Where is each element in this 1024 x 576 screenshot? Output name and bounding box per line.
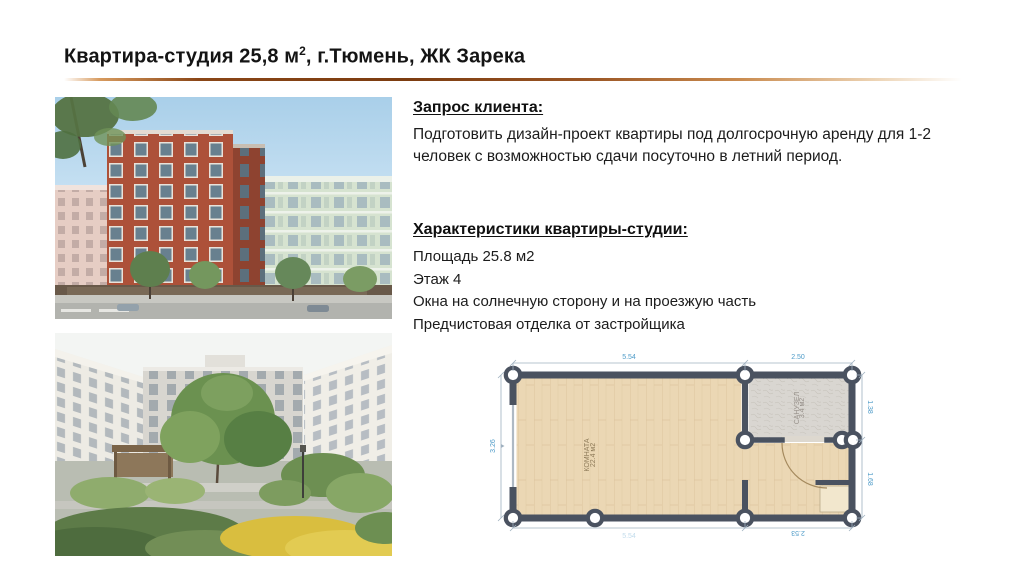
characteristics-heading: Характеристики квартиры-студии: [413, 221, 998, 239]
dimension-label: 5.54 [622, 533, 636, 540]
dimension-label: 2.50 [791, 354, 805, 361]
room-label-main: КОМНАТА 22.4 м2 [584, 438, 597, 471]
client-request-body: Подготовить дизайн-проект квартиры под д… [413, 124, 973, 167]
page-title: Квартира-студия 25,8 м2, г.Тюмень, ЖК За… [64, 44, 525, 69]
page-title-main: Квартира-студия 25,8 м [64, 46, 299, 68]
page-title-superscript: 2 [299, 44, 306, 58]
characteristic-item: Окна на солнечную сторону и на проезжую … [413, 291, 998, 314]
floor-plan: 5.54 2.50 1.38 1.68 3.26 5.54 2.53 КОМНА… [486, 340, 888, 576]
dimension-label: 1.68 [866, 472, 873, 486]
dimension-label: 3.26 [490, 439, 497, 453]
dimension-label: 1.38 [866, 400, 873, 414]
client-request-section: Запрос клиента: Подготовить дизайн-проек… [413, 99, 998, 167]
floor-plan-drawing: 5.54 2.50 1.38 1.68 3.26 5.54 2.53 КОМНА… [486, 340, 888, 576]
characteristics-section: Характеристики квартиры-студии: Площадь … [413, 221, 998, 336]
svg-text:22.4 м2: 22.4 м2 [590, 443, 597, 467]
title-accent-rule [64, 78, 962, 81]
building-exterior-illustration [55, 97, 392, 319]
dimension-label: 5.54 [622, 354, 636, 361]
client-request-heading: Запрос клиента: [413, 99, 998, 117]
courtyard-photo [55, 333, 392, 556]
dimension-label: 2.53 [791, 529, 805, 536]
characteristic-item: Этаж 4 [413, 269, 998, 292]
courtyard-illustration [55, 333, 392, 556]
page-title-rest: , г.Тюмень, ЖК Зарека [306, 46, 525, 68]
characteristic-item: Площадь 25.8 м2 [413, 246, 998, 269]
presentation-slide: Квартира-студия 25,8 м2, г.Тюмень, ЖК За… [0, 0, 1024, 576]
building-exterior-photo [55, 97, 392, 319]
svg-text:3.4 м2: 3.4 м2 [799, 398, 806, 418]
characteristic-item: Предчистовая отделка от застройщика [413, 314, 998, 337]
wardrobe [820, 486, 849, 512]
